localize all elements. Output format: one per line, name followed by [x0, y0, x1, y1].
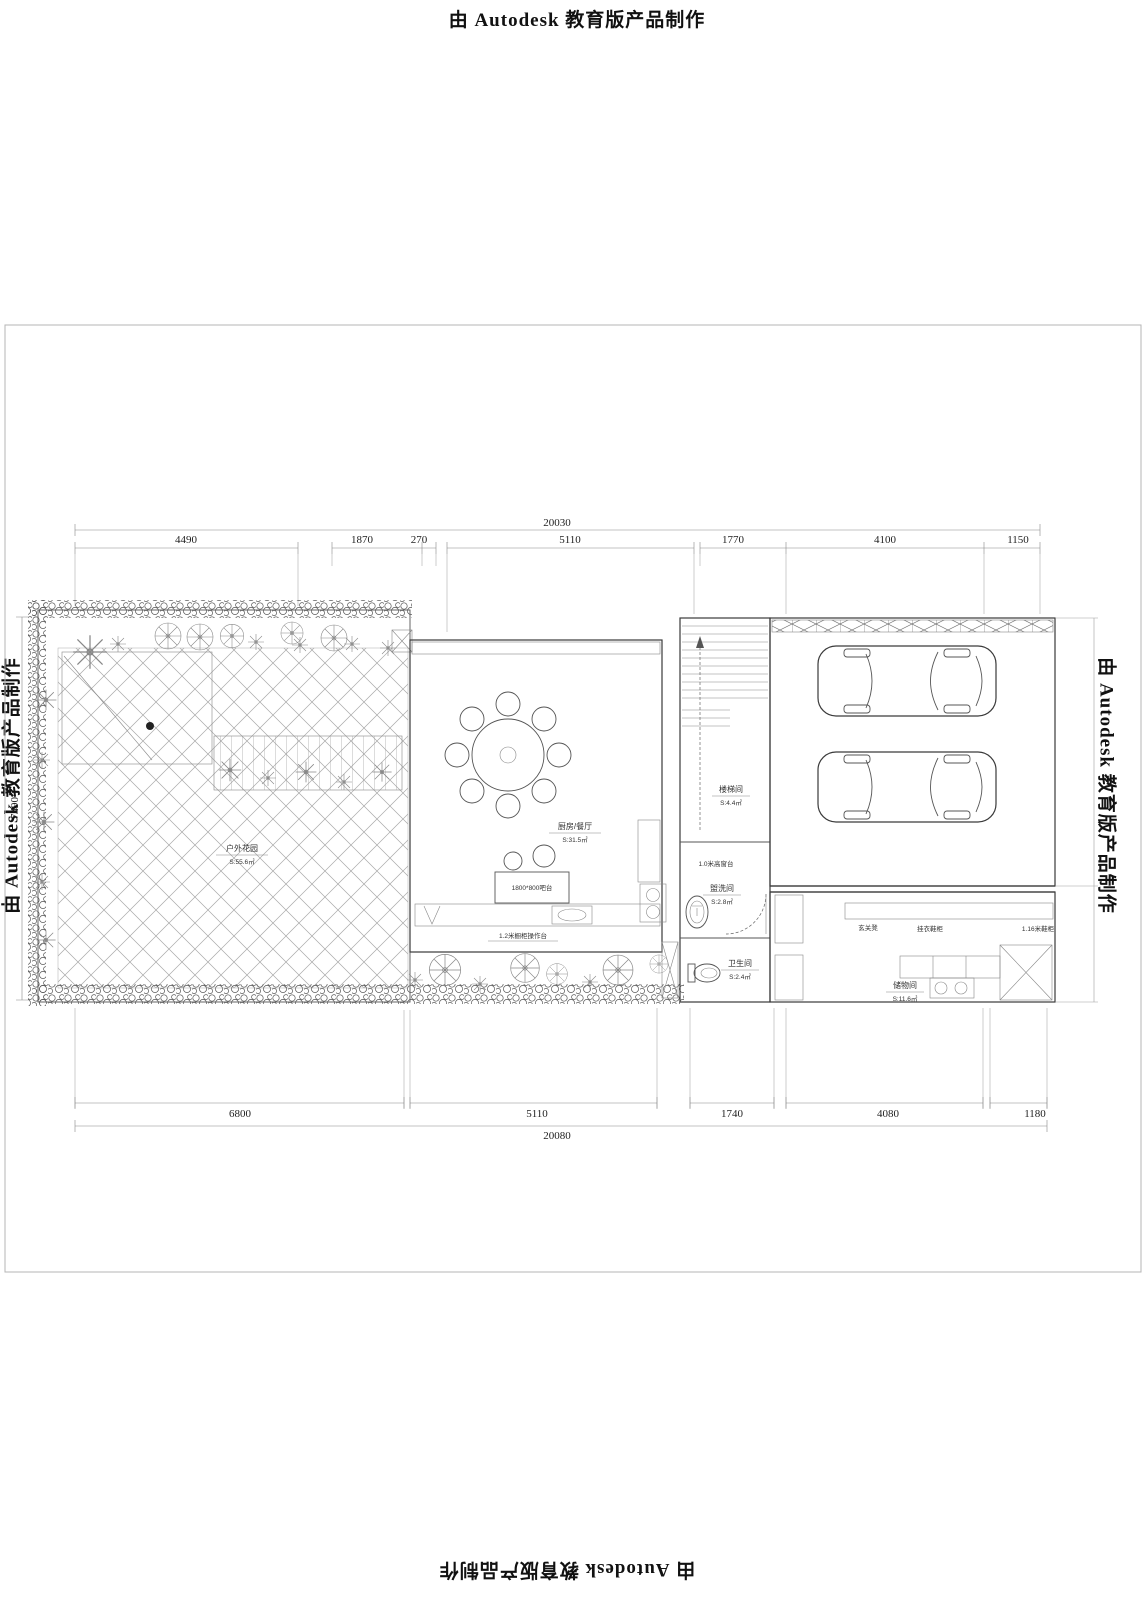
kitchen-name: 厨房/餐厅	[558, 821, 592, 831]
wash-name: 盥洗间	[710, 883, 734, 893]
car-2	[818, 752, 996, 822]
dim-top-6: 4100	[874, 534, 897, 546]
toilet-fixture	[688, 964, 720, 982]
room-label-storage: 储物间 S:11.6㎡	[886, 980, 924, 1003]
garage-window-band	[772, 620, 1053, 632]
dim-top-3: 270	[411, 534, 428, 546]
right-extensions	[1055, 618, 1098, 1002]
dim-bottom-2: 5110	[526, 1108, 548, 1120]
bar-island: 1800*800吧台	[495, 845, 569, 903]
kitchen-dining-room: 1800*800吧台 1.2米橱柜操作台 厨房/餐厅	[407, 640, 668, 992]
storage-entry: 玄关凳 挂衣鞋柜 1.16米鞋柜 储物间 S:11.6㎡	[770, 892, 1055, 1003]
cad-floorplan-page: 由 Autodesk 教育版产品制作 由 Autodesk 教育版产品制作 由 …	[0, 0, 1146, 1600]
counter-label: 1.2米橱柜操作台	[499, 931, 547, 940]
washbasin	[686, 896, 708, 928]
stair-name: 楼梯间	[719, 784, 743, 794]
window-sill-label: 1.0米高窗台	[698, 859, 733, 868]
shoe-cabinet2-label: 1.16米鞋柜	[1022, 924, 1055, 933]
washer-dryer	[930, 978, 974, 998]
dim-bottom-3: 1740	[721, 1108, 744, 1120]
stair-area: S:4.4㎡	[720, 798, 742, 807]
floor-plan-svg: 20030 4490 1870 270 5110 1770 4100 1150 …	[0, 0, 1146, 1600]
dimension-left: 7490	[9, 617, 28, 1000]
dim-left-height: 7490	[9, 797, 21, 820]
dim-top-5: 1770	[722, 534, 745, 546]
dim-top-1: 4490	[175, 534, 198, 546]
dim-bottom-5: 1180	[1024, 1108, 1046, 1120]
storage-name: 储物间	[893, 980, 917, 990]
garden-name: 户外花园	[226, 843, 258, 853]
wash-area: S:2.8㎡	[711, 897, 733, 906]
garage	[770, 618, 1055, 892]
washroom: 1.0米高窗台 盥洗间 S:2.8㎡	[686, 859, 766, 934]
car-1	[818, 646, 996, 716]
bar-table-label: 1800*800吧台	[512, 883, 553, 892]
toilet-name: 卫生间	[728, 958, 752, 968]
stair-bath-column: 楼梯间 S:4.4㎡ 1.0米高窗台 盥洗间 S:2.8㎡	[662, 618, 770, 1002]
hedge-top	[30, 600, 412, 618]
window-band-top	[412, 642, 660, 654]
toilet-room: 卫生间 S:2.4㎡	[688, 958, 759, 982]
dim-bottom-1: 6800	[229, 1108, 252, 1120]
dim-top-total: 20030	[543, 517, 571, 529]
shoe-cabinet-label: 挂衣鞋柜	[917, 924, 944, 933]
entry-bench-label: 玄关凳	[858, 923, 878, 932]
garden-slat-deck	[214, 736, 402, 790]
kitchen-area: S:31.5㎡	[562, 835, 588, 844]
dim-bottom-total: 20080	[543, 1130, 571, 1142]
storage-cabinet	[900, 956, 1000, 978]
garden-area: S:55.6㎡	[229, 857, 255, 866]
dim-top-7: 1150	[1007, 534, 1029, 546]
dim-bottom-4: 4080	[877, 1108, 900, 1120]
toilet-area: S:2.4㎡	[729, 972, 751, 981]
outdoor-garden: 户外花园 S:55.6㎡	[28, 600, 684, 1006]
dim-top-2: 1870	[351, 534, 374, 546]
storage-area: S:11.6㎡	[893, 994, 918, 1003]
hedge-left	[28, 600, 46, 1006]
shoe-cabinet-band	[845, 903, 1053, 919]
storage-window	[1000, 945, 1052, 1000]
room-label-kitchen: 厨房/餐厅 S:31.5㎡	[549, 821, 601, 844]
room-label-stair: 楼梯间 S:4.4㎡	[712, 784, 750, 807]
hedge-bottom	[36, 984, 684, 1004]
dining-table	[445, 692, 571, 818]
dim-top-4: 5110	[559, 534, 581, 546]
kitchen-counter: 1.2米橱柜操作台	[415, 904, 660, 941]
dimension-chain-bottom: 6800 5110 1740 4080 1180 20080	[75, 1008, 1047, 1142]
